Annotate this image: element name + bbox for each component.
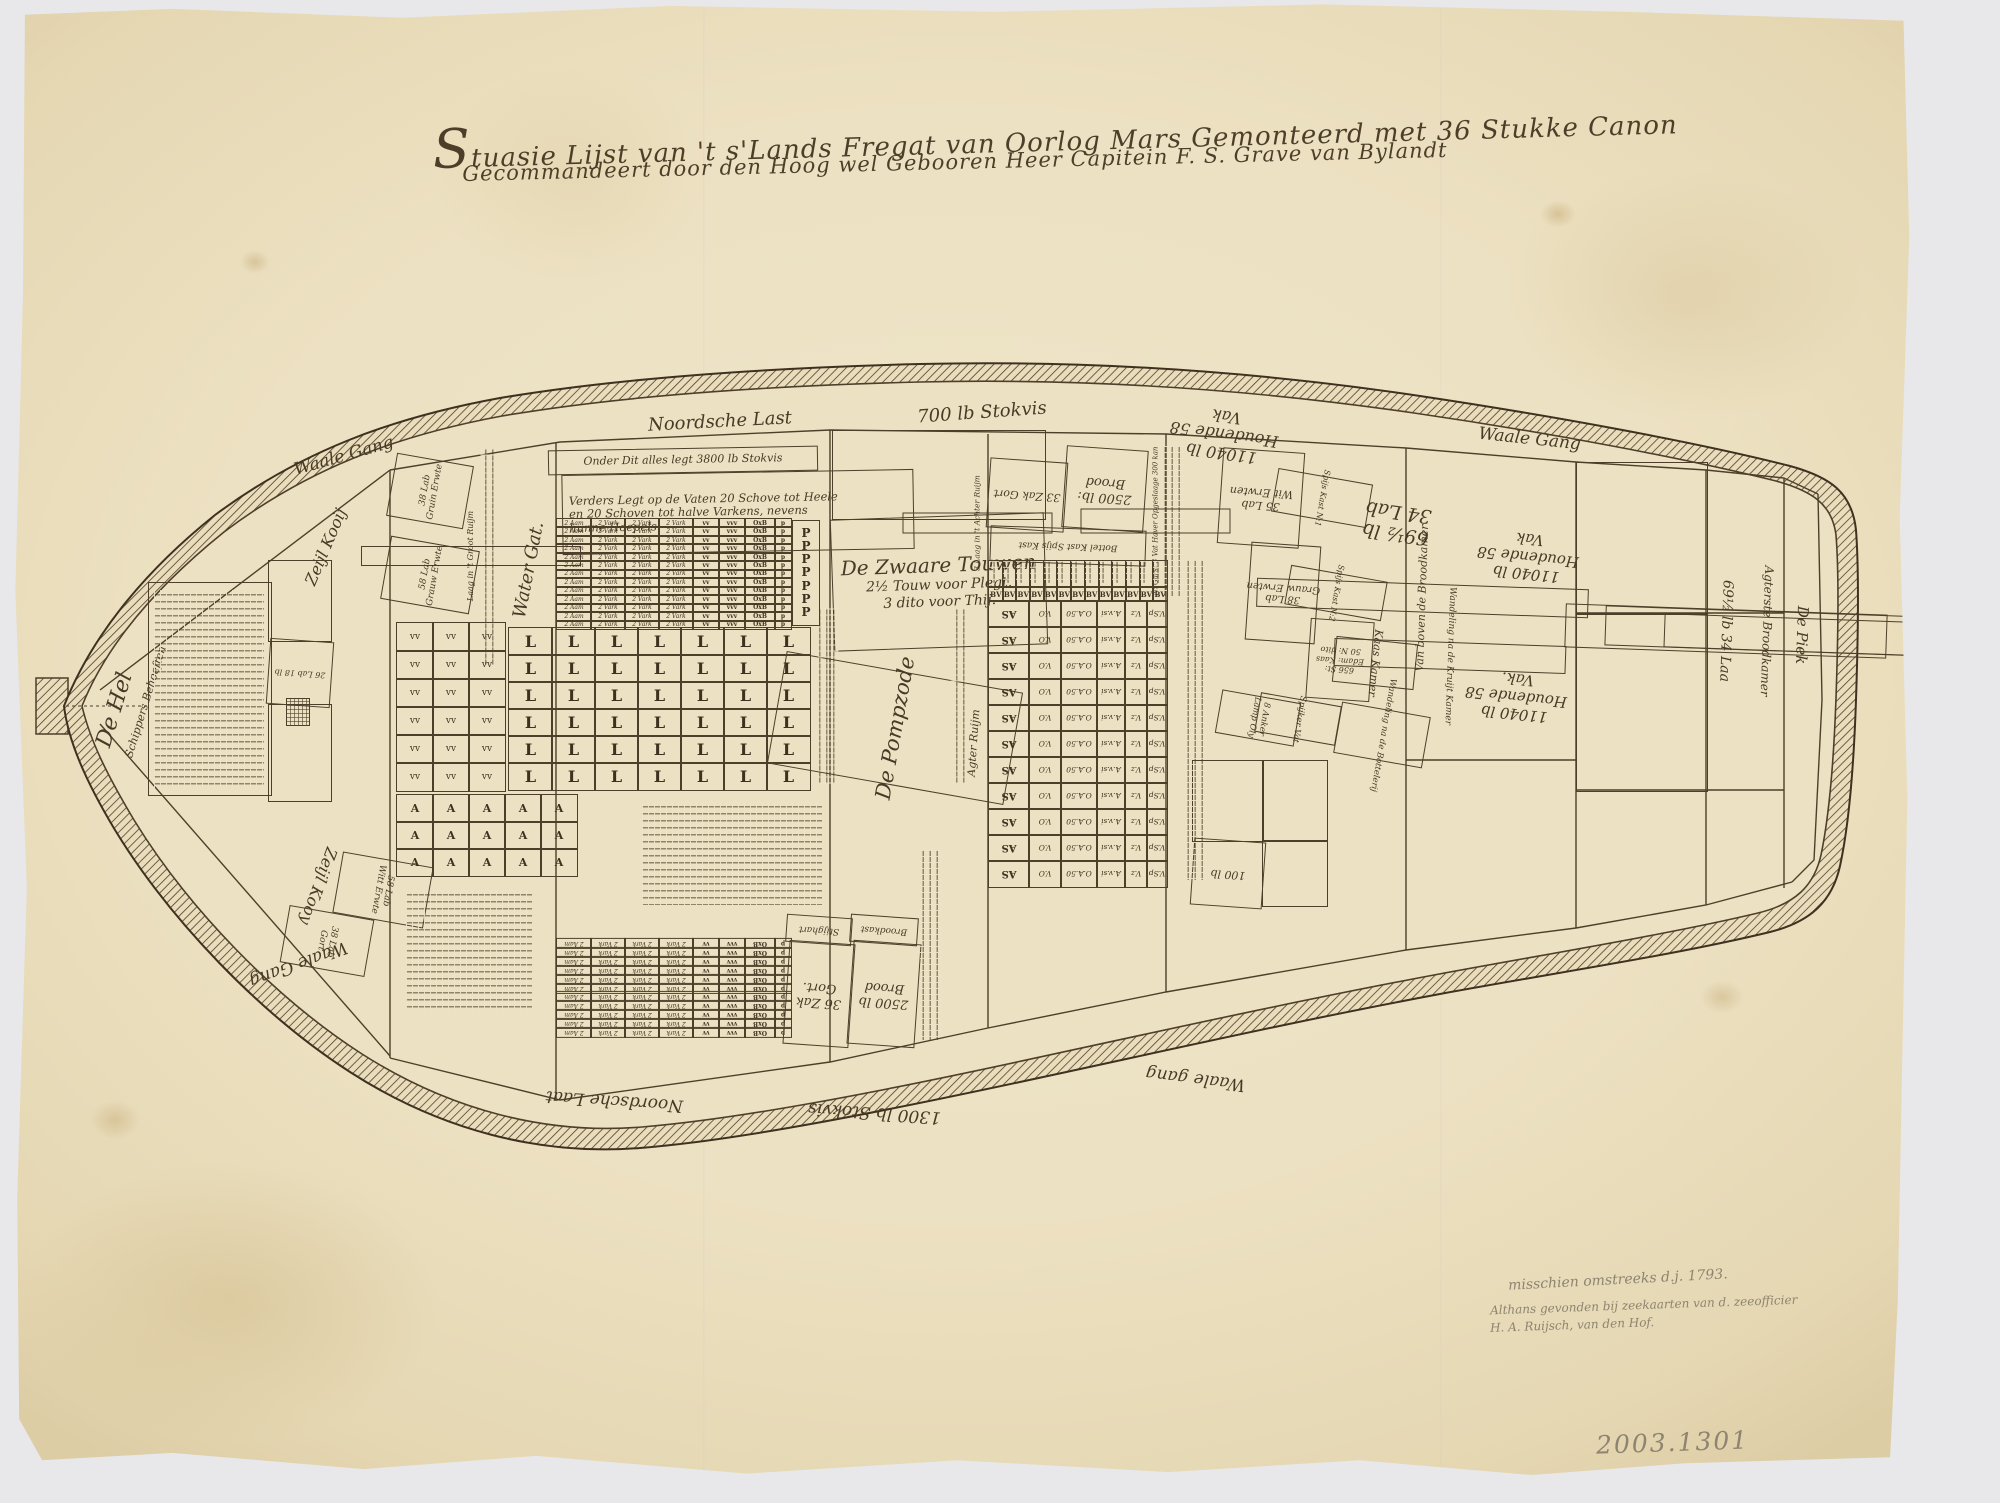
aam-cell: A: [468, 794, 506, 823]
provision-cell: AS: [988, 652, 1030, 680]
label-text: Brood: [1085, 473, 1126, 491]
cell-text: vvv: [727, 949, 737, 956]
cell-text: 2 Vark: [632, 949, 652, 956]
cell-text: p: [781, 967, 785, 974]
label-text: Spijs Kast N:1: [1312, 469, 1331, 527]
provision-cell: AS: [988, 730, 1030, 758]
provision-cell: V.Sp: [1146, 600, 1168, 628]
leaguer-cell: L: [508, 681, 553, 710]
cell-text: 2 Vark: [666, 976, 686, 983]
provision-cell: V.O: [1028, 808, 1062, 836]
scanned-document: { "document": { "title_line1": "Stuasie …: [0, 0, 2000, 1503]
provision-cell: AS: [988, 834, 1030, 862]
provision-cell: V.O: [1028, 704, 1062, 732]
cell-text: p: [781, 976, 785, 983]
bv-header-scribble: [1085, 561, 1095, 583]
leaguer-cell: L: [594, 735, 639, 764]
compartment-box-touwen-upper-box: [832, 430, 1046, 520]
label-text: 26 Lab 18 lb: [274, 667, 325, 680]
label-text: Onder Dit alles legt 3800 lb Stokvis: [583, 452, 782, 468]
compartment-label-gruin-erwte-38: 38 LabGruin Erwte: [386, 453, 474, 530]
provision-cell: V.z: [1124, 678, 1148, 706]
cell-text: 2 Aam: [564, 1029, 583, 1036]
aam-cell: A: [396, 848, 434, 877]
label-text: Brood: [864, 978, 905, 996]
cell-text: 2 Vark: [598, 940, 618, 947]
cell-text: OxB: [753, 940, 767, 947]
vat-cell: vv: [432, 706, 470, 736]
cell-text: 2 Vark: [666, 958, 686, 965]
provision-cell: V.z: [1124, 730, 1148, 758]
aam-cell: A: [432, 794, 470, 823]
cell-text: vv: [703, 967, 710, 974]
bv-header-scribble: [1071, 561, 1081, 583]
provision-cell: A.v.si: [1096, 678, 1126, 706]
p-letter: P: [801, 566, 810, 579]
vat-cell: vv: [432, 762, 470, 792]
p-letter: P: [801, 606, 810, 619]
compartment-label-gort-36: 36 ZakGort.: [782, 940, 855, 1048]
leaguer-cell: L: [723, 654, 768, 683]
provision-cell: AS: [988, 678, 1030, 706]
bv-header-scribble: [1003, 561, 1013, 583]
provision-cell: V.O: [1028, 600, 1062, 628]
accession-number: 2003.1301: [1596, 1425, 1750, 1459]
leaguer-cell: L: [680, 681, 725, 710]
leaguer-cell: L: [594, 708, 639, 737]
cell-text: vvv: [727, 958, 737, 965]
bv-header-scribble: [1112, 561, 1122, 583]
cell-text: 2 Vark: [666, 1029, 686, 1036]
cell-text: OxB: [753, 958, 767, 965]
provision-cell: V.Sp: [1146, 756, 1168, 784]
leaguer-cell: L: [723, 762, 768, 791]
p-letter: P: [801, 580, 810, 593]
provision-cell: O.A.50: [1060, 782, 1098, 810]
compartment-box-stern-box-lower: [1576, 613, 1708, 792]
provision-cell: V.z: [1124, 834, 1148, 862]
handwriting-scribble-gang-strip: [920, 850, 942, 1040]
provision-cell: O.A.50: [1060, 808, 1098, 836]
leaguer-cell: L: [766, 627, 811, 656]
provision-cell: O.A.50: [1060, 704, 1098, 732]
leaguer-cell: L: [637, 654, 682, 683]
leaguer-cell: L: [551, 627, 596, 656]
cell-text: vv: [703, 958, 710, 965]
provision-cell: O.A.50: [1060, 730, 1098, 758]
stores-cell: 2 Vark: [658, 1027, 694, 1038]
label-text: Bottel Kast Spijs Kast: [1018, 539, 1117, 553]
cell-text: 2 Aam: [564, 976, 583, 983]
provision-cell: V.Sp: [1146, 678, 1168, 706]
provision-cell: A.v.si: [1096, 834, 1126, 862]
provision-cell: V.Sp: [1146, 834, 1168, 862]
leaguer-cell: L: [723, 681, 768, 710]
provision-cell: V.O: [1028, 782, 1062, 810]
cell-text: 2 Vark: [632, 958, 652, 965]
provision-cell: V.z: [1124, 808, 1148, 836]
leaguer-cell: L: [637, 762, 682, 791]
aam-cell: A: [540, 821, 578, 850]
leaguer-cell: L: [594, 654, 639, 683]
provision-cell: A.v.si: [1096, 782, 1126, 810]
provision-cell: V.Sp: [1146, 652, 1168, 680]
cell-text: 2 Vark: [632, 967, 652, 974]
cell-text: 2 Vark: [598, 967, 618, 974]
compartment-box-kast-box-2: [1262, 760, 1328, 842]
vat-cell: vv: [396, 734, 434, 764]
provision-cell: AS: [988, 782, 1030, 810]
leaguer-cell: L: [680, 627, 725, 656]
leaguer-cell: L: [594, 627, 639, 656]
leaguer-cell: L: [508, 762, 553, 791]
provision-cell: V.z: [1124, 756, 1148, 784]
vat-cell: vv: [396, 706, 434, 736]
stores-cell: vvv: [718, 1027, 746, 1038]
label-text: De Piek: [1791, 605, 1810, 664]
provision-cell: V.Sp: [1146, 704, 1168, 732]
vat-cell: vv: [432, 650, 470, 680]
label-text: Stijghart: [799, 923, 840, 936]
label-text: 3 dito voor Thij.: [883, 592, 996, 612]
leaguer-cell: L: [508, 735, 553, 764]
aam-cell: A: [540, 848, 578, 877]
provision-cell: AS: [988, 626, 1030, 654]
provision-cell: V.z: [1124, 860, 1148, 888]
provision-cell: A.v.si: [1096, 652, 1126, 680]
bv-header-scribble: [1126, 561, 1136, 583]
handwriting-scribble-ballast-note: [406, 890, 532, 1012]
cell-text: 2 Vark: [598, 1029, 618, 1036]
label-text: Spijker Vat: [1289, 695, 1307, 743]
provision-cell: AS: [988, 704, 1030, 732]
cell-text: vv: [703, 940, 710, 947]
label-text: De Pompzode: [871, 655, 920, 802]
cell-text: p: [781, 958, 785, 965]
provision-cell: V.z: [1124, 652, 1148, 680]
handwriting-scribble-inventory-text: [154, 590, 264, 788]
cell-text: vvv: [727, 940, 737, 947]
cell-text: OxB: [753, 967, 767, 974]
aam-cell: A: [396, 794, 434, 823]
aam-cell: A: [432, 848, 470, 877]
leaguer-cell: L: [637, 708, 682, 737]
provision-cell: O.A.50: [1060, 756, 1098, 784]
compartment-label-garst-haver-strip: N: Garst 3 Vat Haver Opgeslaage 300 kan: [1081, 509, 1231, 534]
cell-text: 2 Vark: [598, 958, 618, 965]
vat-cell: vv: [468, 762, 506, 792]
vat-cell: vv: [396, 762, 434, 792]
cell-text: 2 Vark: [666, 940, 686, 947]
bv-header-scribble: [1153, 561, 1163, 583]
leaguer-cell: L: [723, 735, 768, 764]
label-text: 100 lb: [1210, 866, 1246, 881]
compartment-label-lab-26: 26 Lab 18 lb: [266, 638, 334, 708]
leaguer-cell: L: [723, 708, 768, 737]
cell-text: p: [781, 1029, 785, 1036]
aam-cell: A: [432, 821, 470, 850]
provision-cell: A.v.si: [1096, 626, 1126, 654]
aam-cell: A: [504, 821, 542, 850]
handwriting-scribble-pomp-strip-left: [818, 608, 838, 783]
bv-header-scribble: [1099, 561, 1109, 583]
cell-text: OxB: [753, 1029, 767, 1036]
aam-cell: A: [504, 794, 542, 823]
provision-cell: AS: [988, 860, 1030, 888]
leaguer-cell: L: [766, 708, 811, 737]
leaguer-cell: L: [637, 627, 682, 656]
cell-text: 2 Vark: [632, 940, 652, 947]
cell-text: 2 Aam: [564, 949, 583, 956]
vat-cell: vv: [468, 706, 506, 736]
cell-text: vvv: [727, 976, 737, 983]
compartment-box-kooy-box-2: [268, 704, 332, 802]
provision-cell: AS: [988, 756, 1030, 784]
cell-text: vvv: [727, 1029, 737, 1036]
leaguer-cell: L: [637, 735, 682, 764]
provision-cell: V.O: [1028, 834, 1062, 862]
provision-cell: A.v.si: [1096, 860, 1126, 888]
provision-cell: V.Sp: [1146, 808, 1168, 836]
bv-header-scribble: [1044, 561, 1054, 583]
stores-cell: p: [774, 1027, 792, 1038]
stores-cell: vv: [692, 1027, 720, 1038]
leaguer-cell: L: [680, 762, 725, 791]
provision-cell: V.O: [1028, 652, 1062, 680]
leaguer-cell: L: [766, 681, 811, 710]
cell-text: 2 Vark: [666, 967, 686, 974]
provision-cell: V.z: [1124, 782, 1148, 810]
provision-cell: V.O: [1028, 730, 1062, 758]
provision-cell: A.v.si: [1096, 730, 1126, 758]
provision-cell: V.z: [1124, 704, 1148, 732]
cell-text: p: [781, 940, 785, 947]
compartment-box-kast-box-3: [1262, 840, 1328, 907]
provision-cell: A.v.si: [1096, 600, 1126, 628]
label-text: Broodkast: [860, 923, 907, 937]
leaguer-cell: L: [723, 627, 768, 656]
provision-cell: A.v.si: [1096, 808, 1126, 836]
compartment-box-stern-box-upper: [1576, 462, 1708, 615]
provision-cell: V.Sp: [1146, 782, 1168, 810]
cell-text: 2 Aam: [564, 940, 583, 947]
provision-cell: O.A.50: [1060, 860, 1098, 888]
aam-cell: A: [468, 821, 506, 850]
cell-text: vv: [703, 949, 710, 956]
leaguer-cell: L: [594, 681, 639, 710]
cell-text: OxB: [753, 976, 767, 983]
provision-cell: V.Sp: [1146, 626, 1168, 654]
provision-cell: O.A.50: [1060, 678, 1098, 706]
vat-cell: vv: [432, 734, 470, 764]
aam-cell: A: [396, 821, 434, 850]
cell-text: 2 Vark: [598, 949, 618, 956]
provision-cell: AS: [988, 600, 1030, 628]
provision-cell: AS: [988, 808, 1030, 836]
bv-header-cell: [1152, 560, 1168, 588]
provision-cell: V.O: [1028, 626, 1062, 654]
leaguer-cell: L: [766, 654, 811, 683]
handwriting-scribble-touw-berging-note: [642, 802, 822, 905]
leaguer-cell: L: [594, 762, 639, 791]
leaguer-cell: L: [551, 654, 596, 683]
paper-sheet: Stuasie Lijst van 't s'Lands Fregat van …: [0, 0, 1915, 1478]
provision-cell: V.Sp: [1146, 860, 1168, 888]
aam-cell: A: [468, 848, 506, 877]
vat-cell: vv: [432, 678, 470, 708]
compartment-label-brood-2500-bottom: 2500 lbBrood: [846, 940, 921, 1048]
cell-text: OxB: [753, 949, 767, 956]
leaguer-cell: L: [508, 708, 553, 737]
leaguer-cell: L: [508, 654, 553, 683]
p-letter: P: [801, 593, 810, 606]
vat-cell: vv: [468, 622, 506, 652]
provision-cell: O.A.50: [1060, 834, 1098, 862]
cell-text: 2 Vark: [666, 949, 686, 956]
aam-cell: A: [540, 794, 578, 823]
stores-cell: OxB: [744, 1027, 776, 1038]
stores-cell: 2 Vark: [590, 1027, 626, 1038]
leaguer-cell: L: [551, 762, 596, 791]
vat-cell: vv: [396, 678, 434, 708]
provision-cell: V.O: [1028, 860, 1062, 888]
leaguer-cell: L: [637, 681, 682, 710]
provision-cell: A.v.si: [1096, 756, 1126, 784]
aam-cell: A: [504, 848, 542, 877]
provision-cell: V.O: [1028, 756, 1062, 784]
provision-cell: O.A.50: [1060, 600, 1098, 628]
bv-header-scribble: [1030, 561, 1040, 583]
cell-text: vv: [703, 1029, 710, 1036]
provision-cell: O.A.50: [1060, 626, 1098, 654]
provision-cell: V.z: [1124, 600, 1148, 628]
provision-cell: A.v.si: [1096, 704, 1126, 732]
compartment-box-kooy-box-1: [268, 560, 332, 642]
vat-cell: vv: [396, 622, 434, 652]
provision-cell: V.z: [1124, 626, 1148, 654]
provision-cell: V.O: [1028, 678, 1062, 706]
vat-cell: vv: [396, 650, 434, 680]
leaguer-cell: L: [680, 735, 725, 764]
label-text: Gort.: [802, 978, 837, 995]
handwriting-scribble-bottelarij-strip: [1185, 560, 1207, 880]
bv-header-scribble: [1140, 561, 1150, 583]
cell-text: 2 Vark: [632, 1029, 652, 1036]
leaguer-cell: L: [766, 735, 811, 764]
bv-header-scribble: [989, 561, 999, 583]
cell-text: 2 Vark: [632, 976, 652, 983]
vat-cell: vv: [468, 678, 506, 708]
leaguer-cell: L: [551, 735, 596, 764]
leaguer-cell: L: [551, 708, 596, 737]
vat-cell: vv: [468, 650, 506, 680]
vat-cell: vv: [432, 622, 470, 652]
leaguer-cell: L: [680, 654, 725, 683]
cell-text: 2 Aam: [564, 958, 583, 965]
stores-cell: 2 Vark: [624, 1027, 660, 1038]
cell-text: vv: [703, 976, 710, 983]
bv-header-scribble: [1057, 561, 1067, 583]
p-column: PPPPPPP: [792, 520, 820, 626]
cell-text: 2 Vark: [598, 976, 618, 983]
provision-cell: V.Sp: [1146, 730, 1168, 758]
leaguer-cell: L: [551, 681, 596, 710]
cell-text: vvv: [727, 967, 737, 974]
provision-cell: O.A.50: [1060, 652, 1098, 680]
bv-header-scribble: [1016, 561, 1026, 583]
vat-cell: vv: [468, 734, 506, 764]
leaguer-cell: L: [766, 762, 811, 791]
cell-text: p: [781, 949, 785, 956]
stores-cell: 2 Aam: [556, 1027, 592, 1038]
leaguer-cell: L: [680, 708, 725, 737]
cell-text: 2 Aam: [564, 967, 583, 974]
leaguer-cell: L: [508, 627, 553, 656]
handwriting-scribble-pomp-strip-right: [950, 608, 968, 783]
